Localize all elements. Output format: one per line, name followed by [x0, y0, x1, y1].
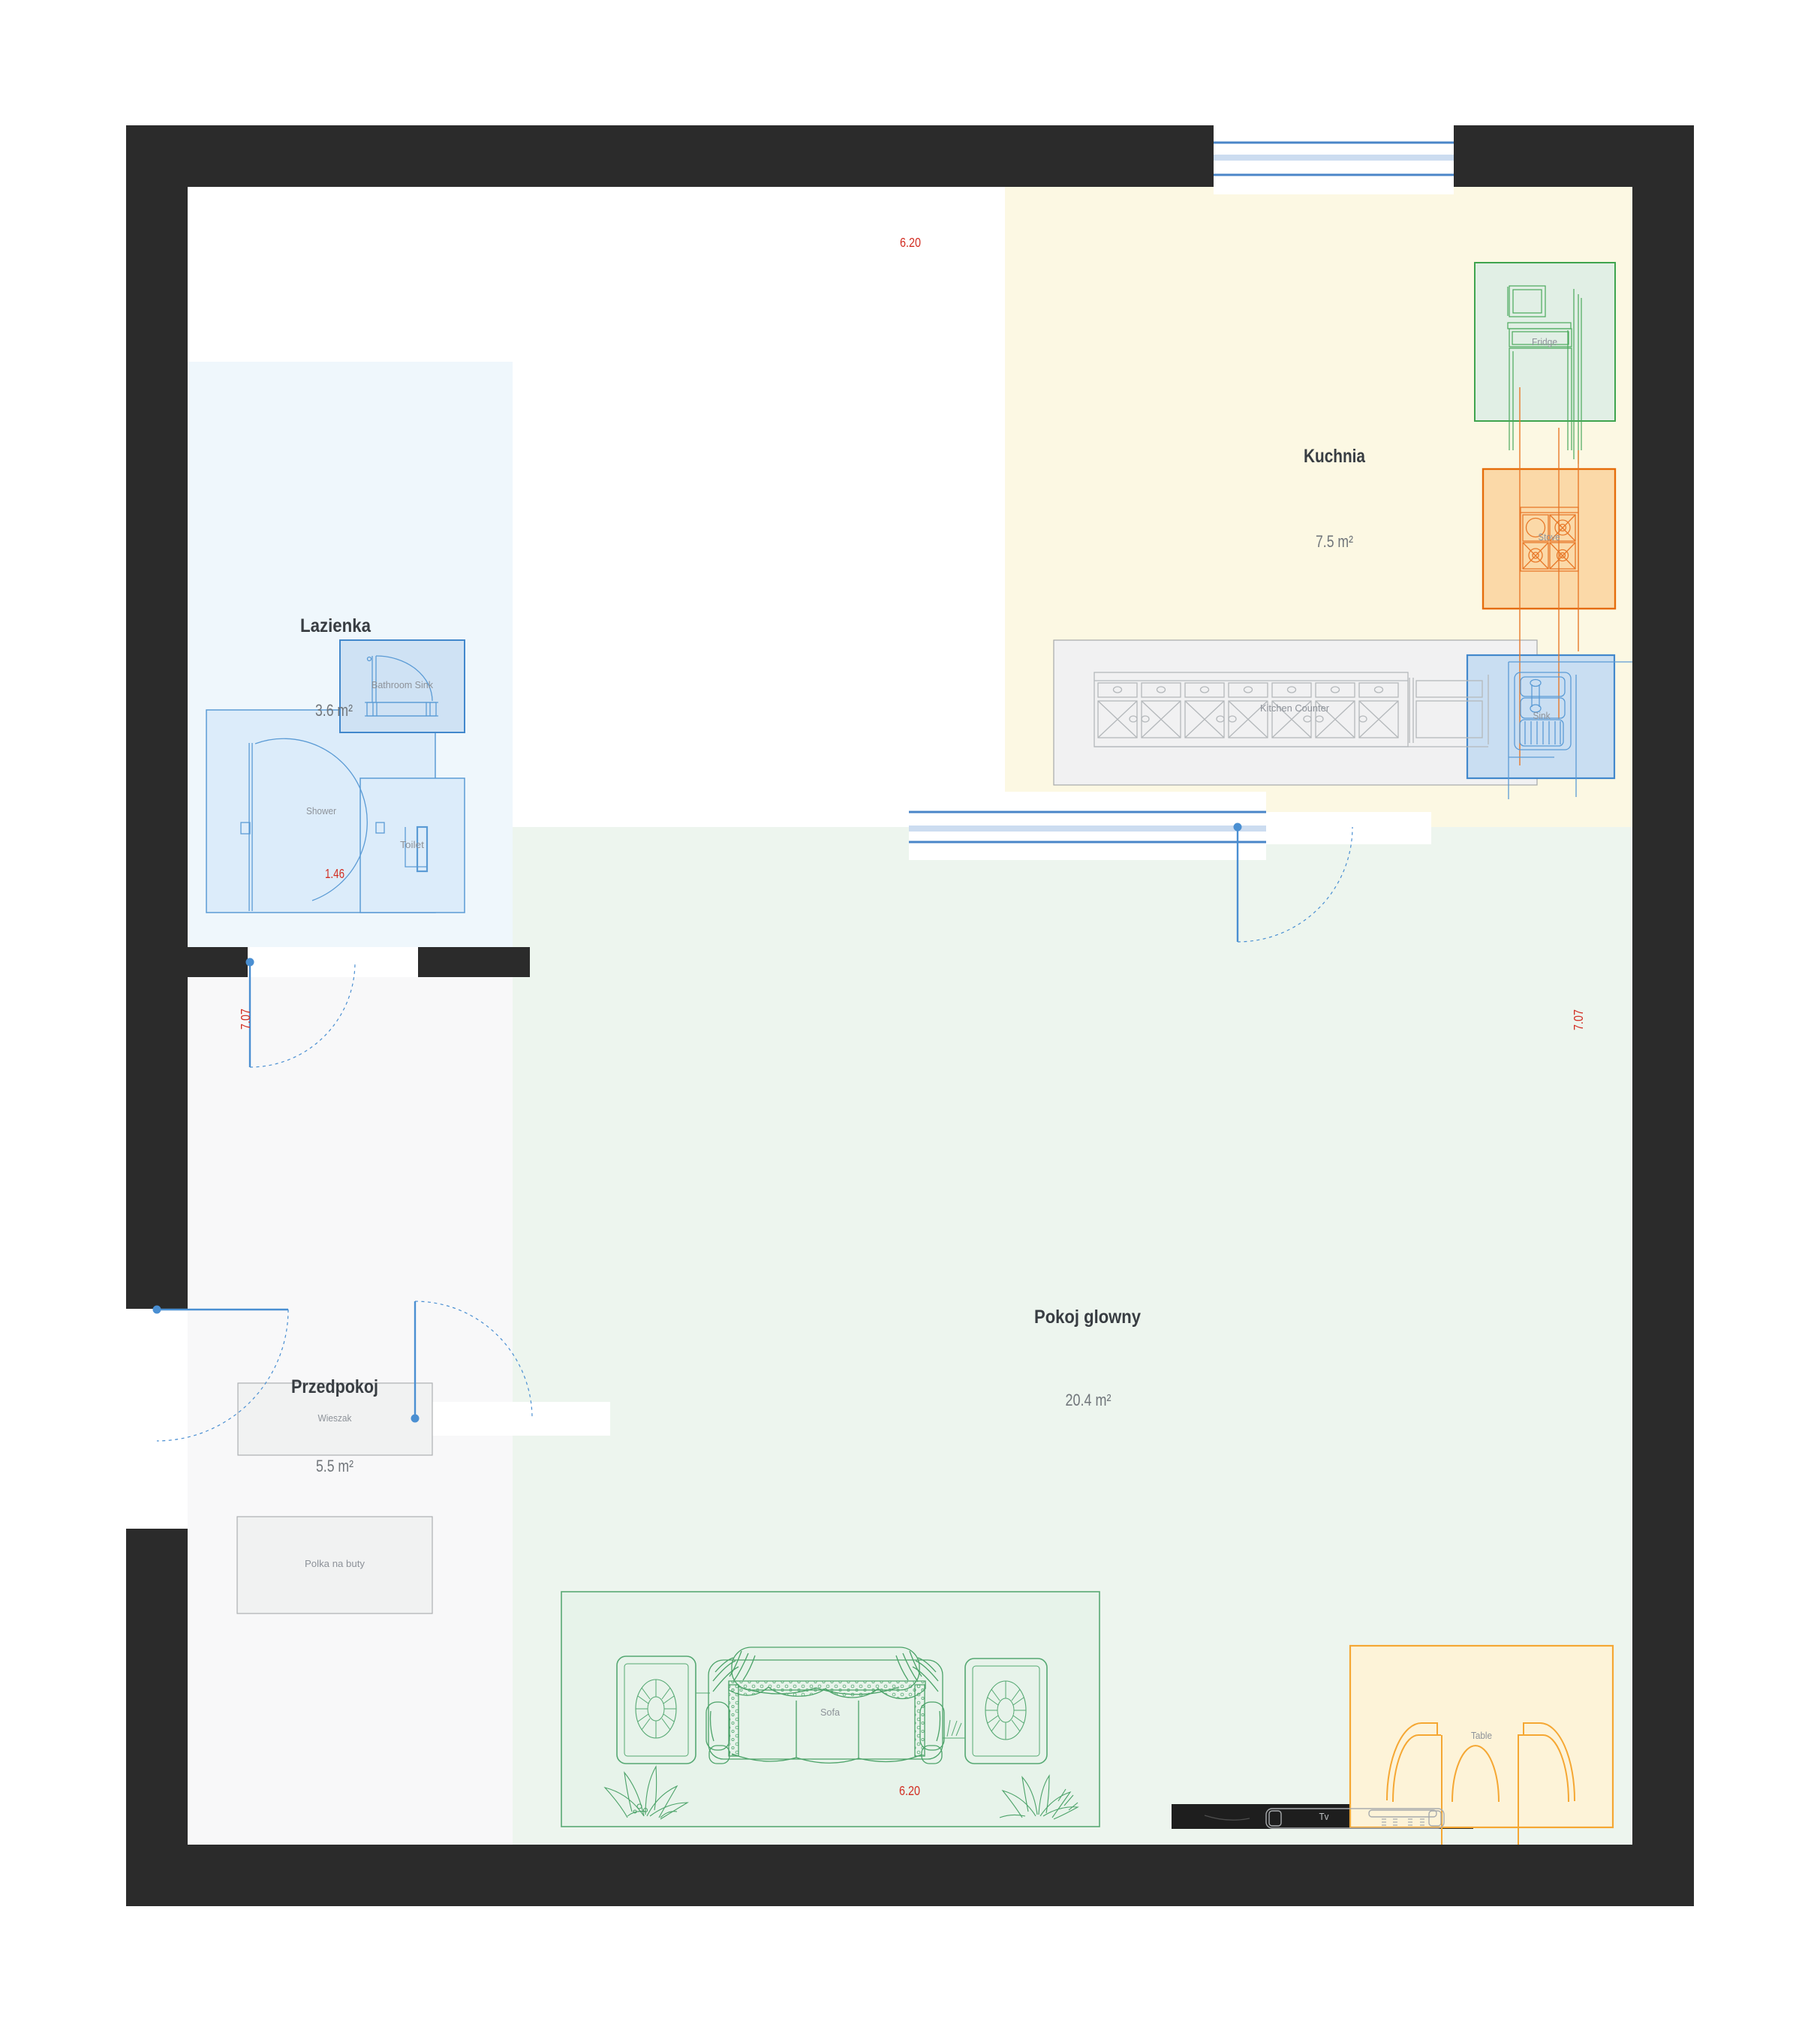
svg-text:7.07: 7.07 — [1571, 1009, 1586, 1030]
svg-text:Wieszak: Wieszak — [318, 1412, 352, 1424]
svg-text:Tv: Tv — [1319, 1811, 1329, 1822]
svg-text:Przedpokoj: Przedpokoj — [291, 1376, 378, 1397]
svg-text:6.20: 6.20 — [900, 235, 921, 250]
svg-text:Sink: Sink — [1533, 710, 1551, 721]
svg-text:Stove: Stove — [1539, 531, 1560, 543]
svg-text:Toilet: Toilet — [400, 839, 424, 850]
svg-text:5.5 m²: 5.5 m² — [316, 1457, 353, 1475]
svg-text:Kitchen Counter: Kitchen Counter — [1260, 702, 1330, 714]
svg-text:3.6 m²: 3.6 m² — [315, 701, 353, 720]
svg-text:Shower: Shower — [306, 805, 337, 817]
svg-text:7.07: 7.07 — [238, 1009, 253, 1030]
svg-text:Polka na buty: Polka na buty — [305, 1558, 366, 1569]
svg-text:Fridge: Fridge — [1532, 336, 1557, 347]
svg-text:Kuchnia: Kuchnia — [1304, 446, 1366, 467]
svg-text:Sofa: Sofa — [820, 1707, 841, 1718]
svg-text:Bathroom Sink: Bathroom Sink — [372, 679, 433, 690]
svg-text:Pokoj glowny: Pokoj glowny — [1034, 1307, 1141, 1328]
svg-text:Table: Table — [1471, 1730, 1492, 1741]
svg-text:7.5 m²: 7.5 m² — [1316, 532, 1353, 551]
svg-text:Lazienka: Lazienka — [300, 615, 372, 636]
svg-text:1.46: 1.46 — [325, 866, 344, 881]
svg-text:20.4 m²: 20.4 m² — [1066, 1391, 1112, 1409]
svg-text:6.20: 6.20 — [899, 1783, 920, 1798]
